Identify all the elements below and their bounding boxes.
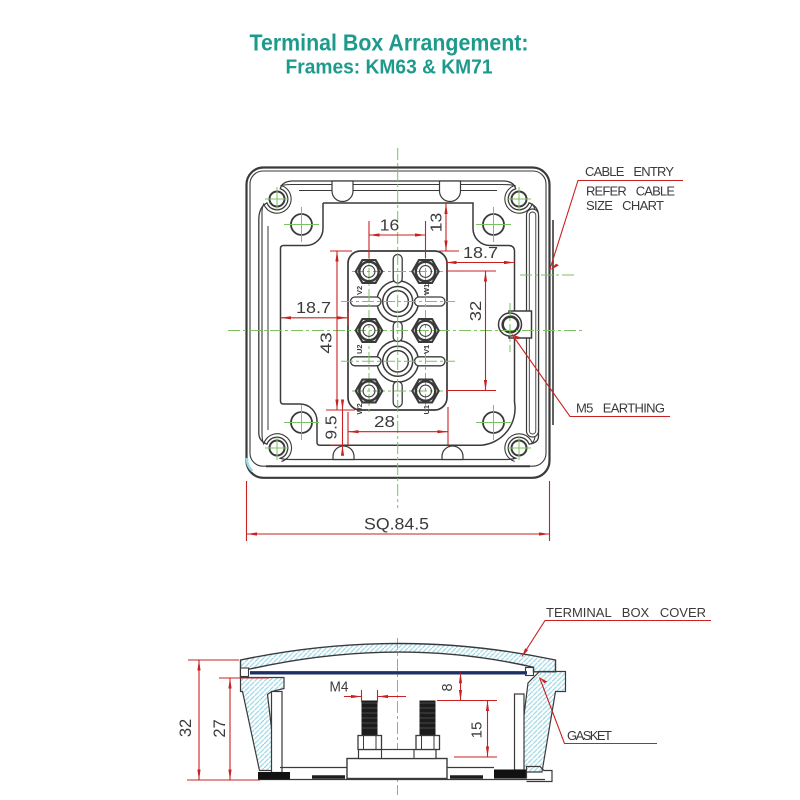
svg-text:GASKET: GASKET [567, 728, 613, 743]
svg-text:CABLE ENTRY: CABLE ENTRY [585, 164, 675, 179]
svg-text:16: 16 [380, 218, 400, 235]
svg-text:SIZE CHART: SIZE CHART [586, 198, 665, 213]
svg-text:28: 28 [374, 414, 395, 431]
svg-text:U1: U1 [422, 405, 431, 415]
svg-text:43: 43 [319, 332, 336, 354]
svg-text:W1: W1 [422, 284, 431, 295]
svg-text:9.5: 9.5 [324, 416, 341, 440]
svg-text:27: 27 [211, 719, 229, 737]
svg-text:8: 8 [440, 683, 456, 691]
svg-text:15: 15 [469, 722, 486, 739]
svg-text:V2: V2 [355, 286, 364, 295]
svg-text:18.7: 18.7 [296, 300, 331, 317]
svg-text:W2: W2 [355, 403, 364, 414]
svg-text:U2: U2 [355, 344, 364, 354]
svg-text:18.7: 18.7 [463, 245, 498, 262]
svg-text:M4: M4 [330, 680, 349, 696]
svg-text:M5 EARTHING: M5 EARTHING [576, 401, 666, 416]
svg-text:32: 32 [468, 301, 485, 322]
svg-text:V1: V1 [422, 345, 431, 354]
svg-text:Terminal Box Arrangement:: Terminal Box Arrangement: [250, 30, 529, 56]
svg-text:13: 13 [429, 213, 446, 233]
svg-text:TERMINAL BOX COVER: TERMINAL BOX COVER [546, 605, 707, 620]
svg-text:REFER CABLE: REFER CABLE [586, 184, 676, 199]
svg-text:Frames: KM63 & KM71: Frames: KM63 & KM71 [286, 57, 493, 79]
svg-text:SQ.84.5: SQ.84.5 [364, 515, 429, 534]
svg-text:32: 32 [177, 719, 195, 737]
